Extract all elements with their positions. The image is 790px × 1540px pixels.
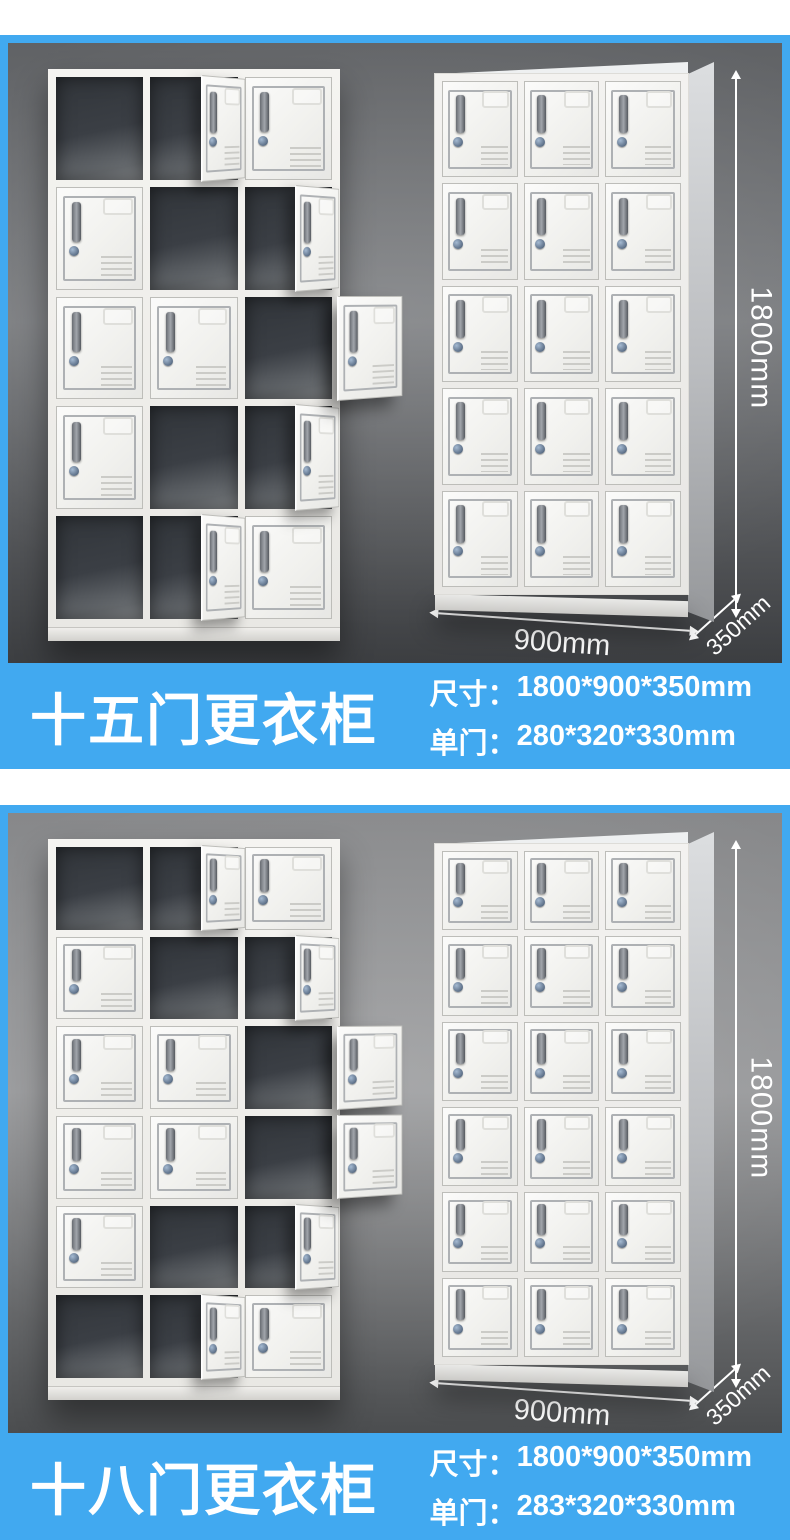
door-handle [456,863,465,894]
label-holder [292,1304,322,1318]
vent-slots-icon [563,556,590,575]
locker-door-closed [524,183,600,279]
door-handle [619,1289,628,1320]
keyhole-lock-icon [348,1073,357,1083]
vent-slots-icon [563,249,590,268]
door-handle [619,95,628,133]
vent-slots-icon [101,1082,132,1098]
locker-door [245,847,332,930]
door-handle [350,311,358,352]
vent-slots-icon [481,1246,508,1261]
label-holder [646,945,672,959]
keyhole-lock-icon [617,1153,627,1163]
spec-row-door: 单门： 283*320*330mm [430,1490,752,1532]
keyhole-lock-icon [535,1068,545,1078]
locker-door-closed [56,1026,143,1109]
vent-slots-icon [645,1246,672,1261]
keyhole-lock-icon [163,1074,173,1084]
product-detail-page: 1800mm 900mm 350mm 十五门更衣柜 尺寸： 1800*900*3… [0,0,790,1540]
locker-door [524,286,600,382]
keyhole-lock-icon [617,1324,627,1334]
locker-door [442,286,518,382]
product-card-18-door: 1800mm 900mm 350mm 十八门更衣柜 尺寸： 1800*900*3… [0,805,790,1540]
vent-slots-icon [372,364,394,385]
locker-door [605,388,681,484]
locker-door-closed [605,388,681,484]
keyhole-lock-icon [453,897,463,907]
keyhole-lock-icon [69,246,79,256]
locker-door [524,936,600,1015]
door-handle [619,300,628,338]
door-handle [72,1039,81,1071]
label-holder [482,194,508,210]
keyhole-lock-icon [69,984,79,994]
door-handle [260,531,269,571]
locker-top-panel [435,62,688,74]
locker-compartment-ajar [150,77,237,180]
label-holder [646,860,672,874]
keyhole-lock-icon [453,1324,463,1334]
label-holder [482,945,508,959]
vent-slots-icon [645,905,672,920]
door-handle [537,1204,546,1235]
locker-door [442,936,518,1015]
label-holder [564,296,590,312]
locker-door-closed [56,1206,143,1289]
keyhole-lock-icon [453,137,463,147]
label-holder [564,501,590,517]
vent-slots-icon [563,1246,590,1261]
door-handle [260,859,269,891]
locker-door [524,1278,600,1357]
vent-slots-icon [225,903,240,919]
vent-slots-icon [101,993,132,1009]
locker-door [245,1295,332,1378]
locker-door-closed [150,1026,237,1109]
vent-slots-icon [196,1172,227,1188]
spec-row-size: 尺寸： 1800*900*350mm [430,671,752,713]
label-holder [482,1030,508,1044]
locker-door-closed [524,851,600,930]
keyhole-lock-icon [535,444,545,454]
label-holder [646,1030,672,1044]
door-handle [72,312,81,352]
keyhole-lock-icon [69,1074,79,1084]
vent-slots-icon [101,1262,132,1278]
label-holder [646,296,672,312]
label-holder [225,856,240,871]
vent-slots-icon [481,1075,508,1090]
locker-door-closed [605,183,681,279]
keyhole-lock-icon [617,342,627,352]
label-holder [564,194,590,210]
locker-compartment-swung [245,1026,332,1109]
locker-door-closed [442,936,518,1015]
door-handle [456,402,465,440]
door-handle [304,1217,311,1250]
label-holder [319,198,334,216]
keyhole-lock-icon [69,356,79,366]
locker-door-closed [442,1022,518,1101]
height-dimension-label: 1800mm [744,1057,778,1172]
door-handle [537,1033,546,1064]
door-handle [456,198,465,236]
label-holder [482,399,508,415]
door-handle [72,1128,81,1160]
vent-slots-icon [645,1161,672,1176]
product-banner: 十八门更衣柜 尺寸： 1800*900*350mm 单门： 283*320*33… [8,1433,782,1539]
label-holder [564,1286,590,1300]
vent-slots-icon [196,366,227,386]
locker-door-grid [48,839,340,1386]
locker-door-closed [442,851,518,930]
keyhole-lock-icon [617,1068,627,1078]
door-handle [72,202,81,242]
locker-compartment-swung [245,1116,332,1199]
locker-base [435,1364,688,1387]
label-holder [564,399,590,415]
locker-door-closed [605,851,681,930]
locker-compartment-open [150,937,237,1020]
door-handle [304,948,311,981]
keyhole-lock-icon [209,576,217,586]
locker-door-closed [524,1107,600,1186]
locker-door [605,183,681,279]
locker-door [56,1206,143,1289]
label-holder [319,946,334,961]
locker-door [295,404,339,511]
locker-door-closed [605,936,681,1015]
vent-slots-icon [645,556,672,575]
spec-value: 1800*900*350mm [517,671,752,713]
locker-compartment-swung [245,297,332,400]
locker-door [524,1022,600,1101]
locker-door [337,296,402,401]
label-holder [319,417,334,435]
closed-locker-photo [435,74,688,610]
locker-door [201,1294,245,1380]
label-holder [198,1035,228,1049]
label-holder [103,1035,133,1049]
locker-compartment-open [150,187,237,290]
label-holder [292,856,322,870]
locker-top-panel [435,832,688,844]
locker-door [442,1107,518,1186]
door-handle [456,1204,465,1235]
locker-door-closed [524,286,600,382]
vent-slots-icon [290,903,321,919]
keyhole-lock-icon [69,466,79,476]
open-doors-locker-photo [48,69,340,641]
keyhole-lock-icon [258,1343,268,1353]
vent-slots-icon [563,146,590,165]
keyhole-lock-icon [209,137,217,147]
locker-door [245,516,332,619]
door-handle [456,948,465,979]
locker-door-grid [48,69,340,627]
vent-slots-icon [563,1331,590,1346]
vent-slots-icon [481,556,508,575]
vent-slots-icon [290,147,321,167]
keyhole-lock-icon [535,546,545,556]
door-handle [537,1119,546,1150]
door-handle [456,95,465,133]
locker-door-closed [524,388,600,484]
vent-slots-icon [563,905,590,920]
locker-door [295,935,339,1021]
keyhole-lock-icon [453,1068,463,1078]
door-handle [456,1289,465,1320]
locker-door-closed [605,1192,681,1271]
label-holder [103,308,133,325]
keyhole-lock-icon [535,1238,545,1248]
keyhole-lock-icon [209,1343,217,1353]
locker-door [605,1192,681,1271]
vent-slots-icon [645,1075,672,1090]
keyhole-lock-icon [535,897,545,907]
locker-base [48,627,340,641]
vent-slots-icon [290,586,321,606]
locker-door-closed [245,516,332,619]
keyhole-lock-icon [617,137,627,147]
vent-slots-icon [563,990,590,1005]
label-holder [103,417,133,434]
door-handle [350,1038,358,1071]
spec-label: 单门： [430,1490,517,1532]
locker-door [442,491,518,587]
door-handle [456,505,465,543]
door-handle [166,312,175,352]
product-title: 十五门更衣柜 [30,676,378,757]
keyhole-lock-icon [303,466,311,476]
label-holder [103,1215,133,1229]
door-handle [260,1308,269,1340]
locker-door [442,81,518,177]
keyhole-lock-icon [453,1153,463,1163]
vent-slots-icon [225,1351,240,1367]
locker-door [442,851,518,930]
keyhole-lock-icon [617,1238,627,1248]
door-handle [537,1289,546,1320]
vent-slots-icon [101,1172,132,1188]
keyhole-lock-icon [617,897,627,907]
locker-door [605,1107,681,1186]
locker-compartment-open [150,1206,237,1289]
spec-value: 283*320*330mm [517,1490,736,1532]
locker-door [150,1116,237,1199]
label-holder [198,308,228,325]
locker-compartment-ajar [150,1295,237,1378]
vent-slots-icon [196,1082,227,1098]
spec-list: 尺寸： 1800*900*350mm 单门： 283*320*330mm [430,1441,752,1532]
spec-row-size: 尺寸： 1800*900*350mm [430,1441,752,1483]
keyhole-lock-icon [535,137,545,147]
locker-door [524,183,600,279]
label-holder [564,860,590,874]
locker-door [524,388,600,484]
vent-slots-icon [372,1080,394,1097]
keyhole-lock-icon [453,239,463,249]
door-handle [350,1127,358,1160]
vent-slots-icon [645,1331,672,1346]
door-handle [72,422,81,462]
locker-door [56,1116,143,1199]
locker-compartment-open [56,847,143,930]
door-handle [537,948,546,979]
label-holder [564,945,590,959]
label-holder [646,1201,672,1215]
keyhole-lock-icon [69,1164,79,1174]
photo-panel-15-door: 1800mm 900mm 350mm [8,43,782,663]
door-handle [619,1204,628,1235]
locker-door [605,491,681,587]
label-holder [564,1116,590,1130]
keyhole-lock-icon [535,1324,545,1334]
door-handle [537,402,546,440]
locker-door-closed [442,491,518,587]
keyhole-lock-icon [535,1153,545,1163]
height-dimension-arrow [735,849,737,1379]
locker-compartment-ajar [245,406,332,509]
vent-slots-icon [563,453,590,472]
locker-compartment-open [150,406,237,509]
locker-door [442,1278,518,1357]
locker-door-closed [442,1192,518,1271]
locker-door [337,1025,402,1110]
door-handle [210,859,217,892]
vent-slots-icon [563,1161,590,1176]
vent-slots-icon [319,992,334,1008]
keyhole-lock-icon [617,239,627,249]
keyhole-lock-icon [209,895,217,905]
vent-slots-icon [563,351,590,370]
keyhole-lock-icon [617,444,627,454]
keyhole-lock-icon [535,982,545,992]
keyhole-lock-icon [348,1163,357,1173]
closed-locker-photo [435,844,688,1380]
vent-slots-icon [481,1161,508,1176]
keyhole-lock-icon [617,982,627,992]
spec-label: 尺寸： [430,671,517,713]
locker-door-closed [56,297,143,400]
keyhole-lock-icon [69,1253,79,1263]
locker-door [337,1115,402,1200]
locker-door [605,81,681,177]
vent-slots-icon [645,146,672,165]
keyhole-lock-icon [303,1254,311,1264]
label-holder [482,860,508,874]
vent-slots-icon [645,249,672,268]
label-holder [482,501,508,517]
locker-door [442,1192,518,1271]
locker-compartment-ajar [245,1206,332,1289]
keyhole-lock-icon [258,576,268,586]
keyhole-lock-icon [258,895,268,905]
label-holder [482,1201,508,1215]
keyhole-lock-icon [617,546,627,556]
door-handle [619,1119,628,1150]
spec-value: 280*320*330mm [517,720,736,762]
door-handle [210,1307,217,1340]
vent-slots-icon [645,990,672,1005]
door-handle [619,198,628,236]
door-handle [72,1218,81,1250]
vent-slots-icon [319,256,334,277]
locker-door [524,1107,600,1186]
door-handle [456,1033,465,1064]
label-holder [564,1030,590,1044]
product-title: 十八门更衣柜 [30,1446,378,1527]
label-holder [482,1286,508,1300]
locker-door [56,406,143,509]
locker-door [524,851,600,930]
door-handle [537,863,546,894]
locker-compartment-ajar [245,187,332,290]
locker-door-closed [56,406,143,509]
spec-label: 尺寸： [430,1441,517,1483]
locker-door-closed [442,1278,518,1357]
locker-door-closed [524,1192,600,1271]
locker-door-closed [524,81,600,177]
locker-door-closed [524,1022,600,1101]
locker-compartment-open [56,1295,143,1378]
keyhole-lock-icon [453,444,463,454]
keyhole-lock-icon [453,342,463,352]
label-holder [482,296,508,312]
locker-door [605,1022,681,1101]
locker-door-closed [442,388,518,484]
spec-label: 单门： [430,720,517,762]
locker-compartment-ajar [150,847,237,930]
vent-slots-icon [319,476,334,497]
locker-door-closed [442,183,518,279]
vent-slots-icon [645,351,672,370]
vent-slots-icon [563,1075,590,1090]
door-handle [304,201,311,242]
locker-door-closed [524,491,600,587]
door-handle [166,1128,175,1160]
locker-door [605,936,681,1015]
keyhole-lock-icon [535,342,545,352]
locker-door [56,1026,143,1109]
vent-slots-icon [101,256,132,276]
locker-door [605,1278,681,1357]
locker-door [150,1026,237,1109]
keyhole-lock-icon [453,1238,463,1248]
locker-door-closed [150,297,237,400]
label-holder [646,399,672,415]
height-dimension-label: 1800mm [744,287,778,402]
label-holder [646,1286,672,1300]
label-holder [564,1201,590,1215]
vent-slots-icon [225,585,240,606]
locker-door [442,388,518,484]
door-handle [619,863,628,894]
locker-door [442,183,518,279]
locker-door [56,187,143,290]
keyhole-lock-icon [535,239,545,249]
label-holder [482,91,508,107]
photo-panel-18-door: 1800mm 900mm 350mm [8,813,782,1433]
locker-door [524,81,600,177]
vent-slots-icon [372,1169,394,1186]
door-handle [260,92,269,132]
locker-side-panel [688,62,714,622]
door-handle [619,505,628,543]
spec-value: 1800*900*350mm [517,1441,752,1483]
locker-door [201,514,245,621]
label-holder [373,306,395,323]
